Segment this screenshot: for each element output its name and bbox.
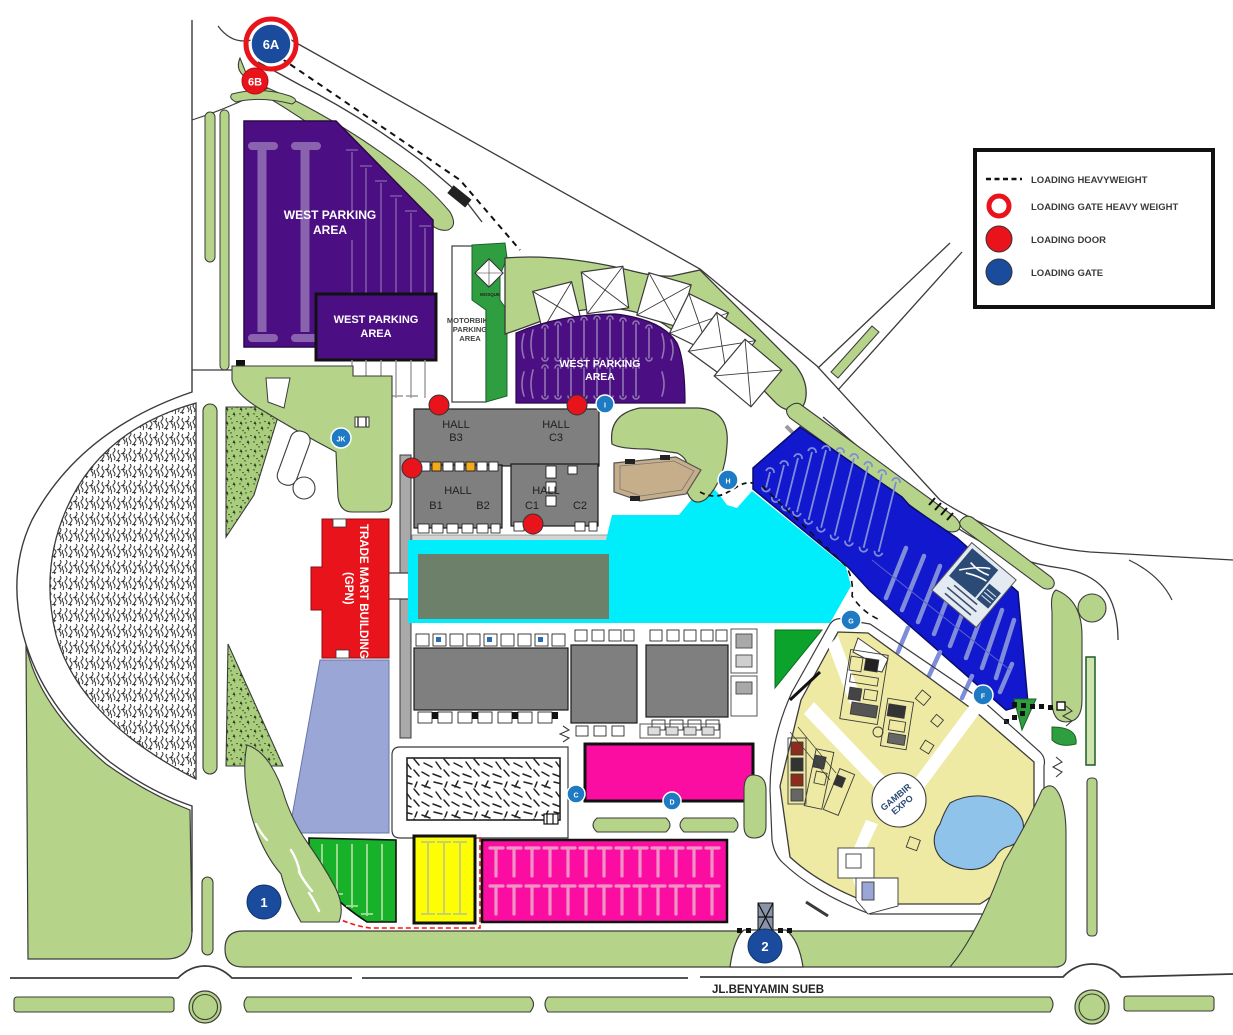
- svg-text:C3: C3: [549, 432, 563, 444]
- svg-text:F: F: [981, 694, 986, 701]
- svg-text:AREA: AREA: [585, 371, 615, 383]
- svg-text:LOADING DOOR: LOADING DOOR: [1031, 235, 1106, 246]
- svg-text:C1: C1: [525, 500, 539, 512]
- svg-text:TRADE MART BUILDING: TRADE MART BUILDING: [357, 524, 369, 659]
- svg-text:6A: 6A: [263, 37, 280, 52]
- svg-text:PARKING: PARKING: [453, 325, 488, 334]
- svg-text:LOADING HEAVYWEIGHT: LOADING HEAVYWEIGHT: [1031, 175, 1148, 186]
- svg-text:HALL: HALL: [532, 485, 560, 497]
- svg-text:WEST PARKING: WEST PARKING: [284, 208, 376, 222]
- svg-text:2: 2: [761, 939, 768, 954]
- svg-text:LOADING GATE: LOADING GATE: [1031, 268, 1103, 279]
- svg-text:WEST PARKING: WEST PARKING: [334, 314, 419, 326]
- svg-text:C: C: [573, 793, 578, 800]
- svg-text:1: 1: [260, 895, 267, 910]
- svg-text:HALL: HALL: [542, 419, 570, 431]
- svg-text:6B: 6B: [248, 77, 262, 89]
- svg-text:AREA: AREA: [313, 223, 347, 237]
- svg-text:AREA: AREA: [459, 334, 481, 343]
- svg-text:LOADING GATE HEAVY WEIGHT: LOADING GATE HEAVY WEIGHT: [1031, 202, 1178, 213]
- svg-text:AREA: AREA: [360, 328, 391, 340]
- svg-text:HALL: HALL: [444, 485, 472, 497]
- svg-text:JK: JK: [337, 437, 346, 444]
- svg-text:JL.BENYAMIN SUEB: JL.BENYAMIN SUEB: [712, 984, 824, 996]
- svg-text:D: D: [669, 800, 674, 807]
- svg-text:(GPN): (GPN): [342, 572, 354, 605]
- svg-text:WEST PARKING: WEST PARKING: [560, 358, 641, 370]
- svg-text:H: H: [725, 479, 730, 486]
- svg-text:G: G: [848, 619, 854, 626]
- svg-text:B1: B1: [429, 500, 442, 512]
- svg-text:B2: B2: [476, 500, 489, 512]
- svg-text:I: I: [604, 403, 606, 410]
- svg-text:B3: B3: [449, 432, 462, 444]
- svg-text:HALL: HALL: [442, 419, 470, 431]
- svg-text:MOSQUE: MOSQUE: [480, 292, 500, 297]
- svg-text:C2: C2: [573, 500, 587, 512]
